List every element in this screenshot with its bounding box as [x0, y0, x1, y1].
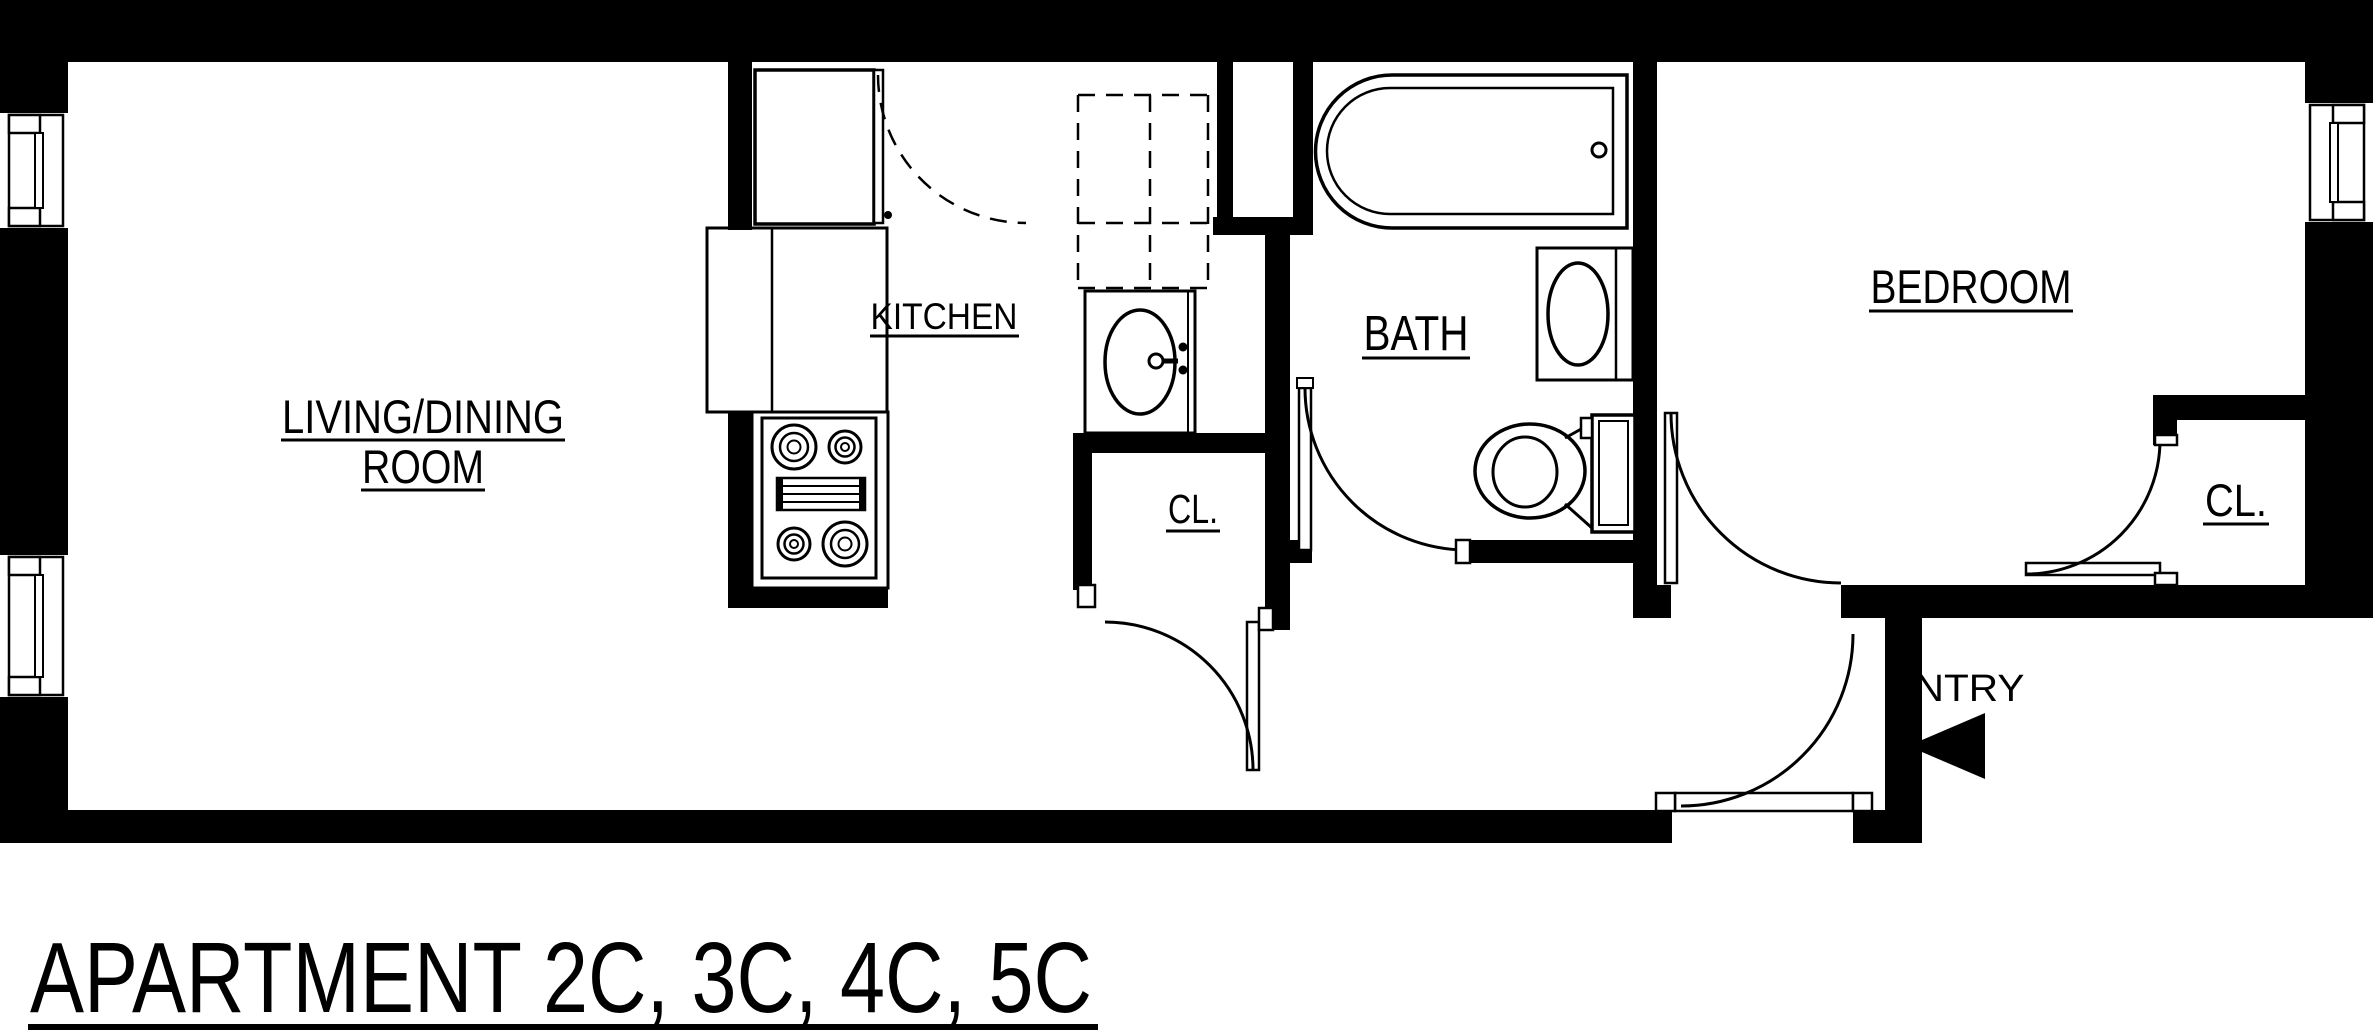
shaft-bottom-wall	[1213, 217, 1313, 235]
refrigerator-swing-arc	[878, 75, 1026, 223]
shaft-left-wall	[1217, 62, 1233, 217]
window-living-upper	[9, 115, 63, 226]
burner-top-right	[829, 431, 861, 463]
page-title: APARTMENT 2C, 3C, 4C, 5C	[30, 922, 1092, 1033]
door-kitchen-closet-arc	[1105, 622, 1253, 770]
range-stove	[752, 412, 888, 588]
wall-kitchen-closet-top	[1073, 433, 1290, 453]
wall-kitchen-upper	[728, 62, 752, 230]
door-bedroom-arc	[1671, 413, 1841, 583]
toilet	[1475, 415, 1635, 532]
door-bedroom	[1665, 413, 1841, 583]
shaft-right-wall	[1293, 62, 1313, 217]
label-living-line2: ROOM	[362, 440, 484, 493]
label-bath: BATH	[1364, 307, 1469, 361]
door-entry-arc	[1681, 634, 1853, 806]
wall-entry-east	[1885, 585, 1922, 843]
wall-bath-bottom	[1468, 540, 1657, 563]
wall-kitchen-lower	[728, 412, 752, 608]
wall-center	[1265, 233, 1290, 630]
door-bath-leaf	[1299, 388, 1311, 550]
burner-top-left	[772, 425, 816, 469]
bathtub	[1316, 75, 1627, 228]
label-kitchen-closet: CL.	[1168, 486, 1218, 532]
bath-vanity-sink	[1537, 248, 1633, 380]
door-bedroom-leaf	[1665, 413, 1677, 583]
tub-drain	[1592, 143, 1606, 157]
kitchen-sink	[1085, 291, 1195, 433]
griddle	[777, 478, 865, 510]
wall-right-upper	[2305, 0, 2373, 103]
refrigerator-hinge-dot	[884, 211, 892, 219]
wall-left-upper	[0, 0, 68, 113]
label-entry: ENTRY	[1888, 668, 2025, 710]
refrigerator	[755, 70, 1026, 224]
kitchen-counter	[707, 228, 887, 412]
door-bedroom-closet	[2026, 435, 2177, 585]
door-bath	[1297, 378, 1470, 563]
door-kitchen-closet-leaf	[1247, 622, 1259, 770]
door-bedroom-closet-arc	[2026, 440, 2160, 574]
wall-kitchen-closet-left	[1073, 453, 1092, 590]
window-bedroom	[2310, 105, 2364, 220]
burner-bottom-left	[778, 528, 810, 560]
label-bedroom-closet: CL.	[2205, 475, 2267, 526]
refrigerator-door	[874, 70, 883, 223]
label-bedroom: BEDROOM	[1871, 260, 2072, 313]
wall-bottom	[0, 810, 1672, 843]
door-bath-arc	[1305, 388, 1467, 550]
door-entry-leaf	[1675, 793, 1853, 811]
door-entry	[1656, 634, 1872, 811]
wall-top	[0, 0, 2373, 62]
label-kitchen: KITCHEN	[871, 296, 1018, 337]
label-living-line1: LIVING/DINING	[282, 390, 564, 443]
floor-plan: LIVING/DINING ROOM KITCHEN CL. BATH BEDR…	[0, 0, 2373, 1033]
toilet-flush-handle	[1581, 418, 1592, 438]
wall-left-middle	[0, 228, 68, 555]
wall-right-lower	[2305, 222, 2373, 618]
burner-bottom-right	[823, 522, 867, 566]
door-kitchen-closet	[1078, 585, 1273, 770]
wall-under-bedroom	[1841, 585, 2305, 618]
wall-bedroom-door-stub	[1633, 585, 1671, 618]
wall-stove-bottom	[752, 588, 888, 608]
floor-plan-canvas: LIVING/DINING ROOM KITCHEN CL. BATH BEDR…	[0, 0, 2373, 1033]
window-living-lower	[9, 557, 63, 695]
